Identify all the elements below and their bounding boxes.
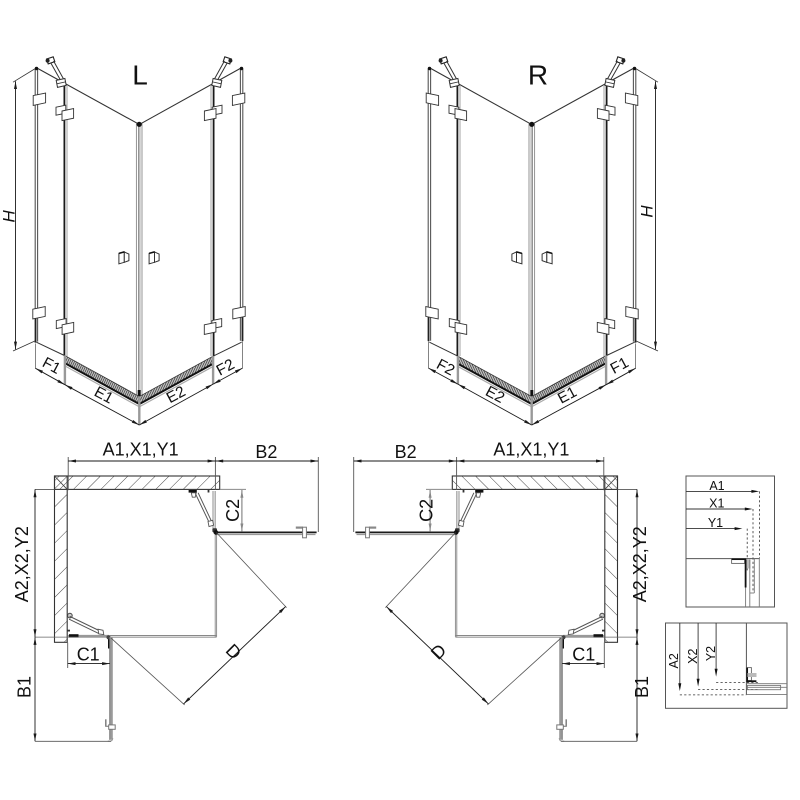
- svg-text:Y1: Y1: [708, 516, 723, 530]
- svg-text:A2: A2: [667, 653, 681, 668]
- svg-text:A1: A1: [709, 479, 724, 493]
- svg-text:B2: B2: [255, 442, 277, 462]
- svg-text:R: R: [528, 59, 548, 90]
- svg-text:Y2: Y2: [704, 646, 718, 661]
- svg-text:L: L: [132, 59, 148, 90]
- svg-text:A2,X2,Y2: A2,X2,Y2: [630, 526, 650, 602]
- svg-text:X1: X1: [709, 497, 724, 511]
- svg-text:C1: C1: [77, 644, 100, 664]
- svg-text:B1: B1: [14, 676, 34, 698]
- svg-text:A1,X1,Y1: A1,X1,Y1: [103, 440, 179, 460]
- svg-text:H: H: [0, 210, 19, 223]
- svg-text:A2,X2,Y2: A2,X2,Y2: [12, 526, 32, 602]
- svg-text:C2: C2: [223, 499, 243, 522]
- svg-text:A1,X1,Y1: A1,X1,Y1: [493, 440, 569, 460]
- svg-text:B1: B1: [632, 676, 652, 698]
- svg-text:X2: X2: [686, 649, 700, 664]
- svg-text:C2: C2: [417, 499, 437, 522]
- svg-text:B2: B2: [395, 442, 417, 462]
- svg-text:H: H: [638, 205, 657, 218]
- svg-text:C1: C1: [572, 644, 595, 664]
